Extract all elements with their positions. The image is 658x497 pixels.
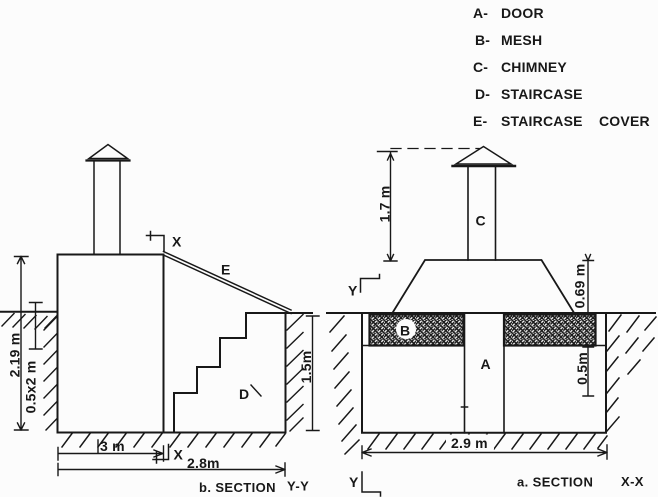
svg-text:Y-Y: Y-Y xyxy=(287,479,309,494)
svg-text:D-: D- xyxy=(475,86,490,102)
svg-text:Y: Y xyxy=(349,474,359,490)
svg-text:E-: E- xyxy=(473,113,488,129)
svg-text:3 m: 3 m xyxy=(100,438,125,454)
svg-text:2.8m: 2.8m xyxy=(187,455,220,471)
svg-text:DOOR: DOOR xyxy=(501,5,544,21)
svg-text:C: C xyxy=(476,213,486,229)
svg-text:A: A xyxy=(481,356,491,372)
svg-text:1.7 m: 1.7 m xyxy=(377,186,393,223)
svg-text:STAIRCASE: STAIRCASE xyxy=(501,86,583,102)
svg-text:MESH: MESH xyxy=(501,32,542,48)
svg-text:D: D xyxy=(239,386,249,402)
svg-text:0.5m: 0.5m xyxy=(574,352,590,385)
svg-text:2.19 m: 2.19 m xyxy=(7,333,23,378)
svg-text:a. SECTION: a. SECTION xyxy=(517,475,593,490)
svg-text:0.5x2 m: 0.5x2 m xyxy=(23,361,39,414)
svg-text:COVER: COVER xyxy=(599,113,650,129)
svg-text:X: X xyxy=(172,234,182,250)
svg-text:E: E xyxy=(221,262,230,278)
svg-text:B: B xyxy=(400,323,410,339)
svg-text:CHIMNEY: CHIMNEY xyxy=(501,59,567,75)
svg-text:b. SECTION: b. SECTION xyxy=(199,480,276,495)
svg-text:Y: Y xyxy=(348,283,358,299)
svg-text:B-: B- xyxy=(475,32,490,48)
svg-text:X: X xyxy=(174,447,184,463)
svg-text:C-: C- xyxy=(473,59,488,75)
svg-text:0.69 m: 0.69 m xyxy=(572,264,588,309)
svg-text:A-: A- xyxy=(473,5,488,21)
svg-text:1.5m: 1.5m xyxy=(298,351,314,384)
svg-text:STAIRCASE: STAIRCASE xyxy=(501,113,583,129)
svg-text:2.9 m: 2.9 m xyxy=(451,435,488,451)
svg-text:X-X: X-X xyxy=(621,474,644,489)
